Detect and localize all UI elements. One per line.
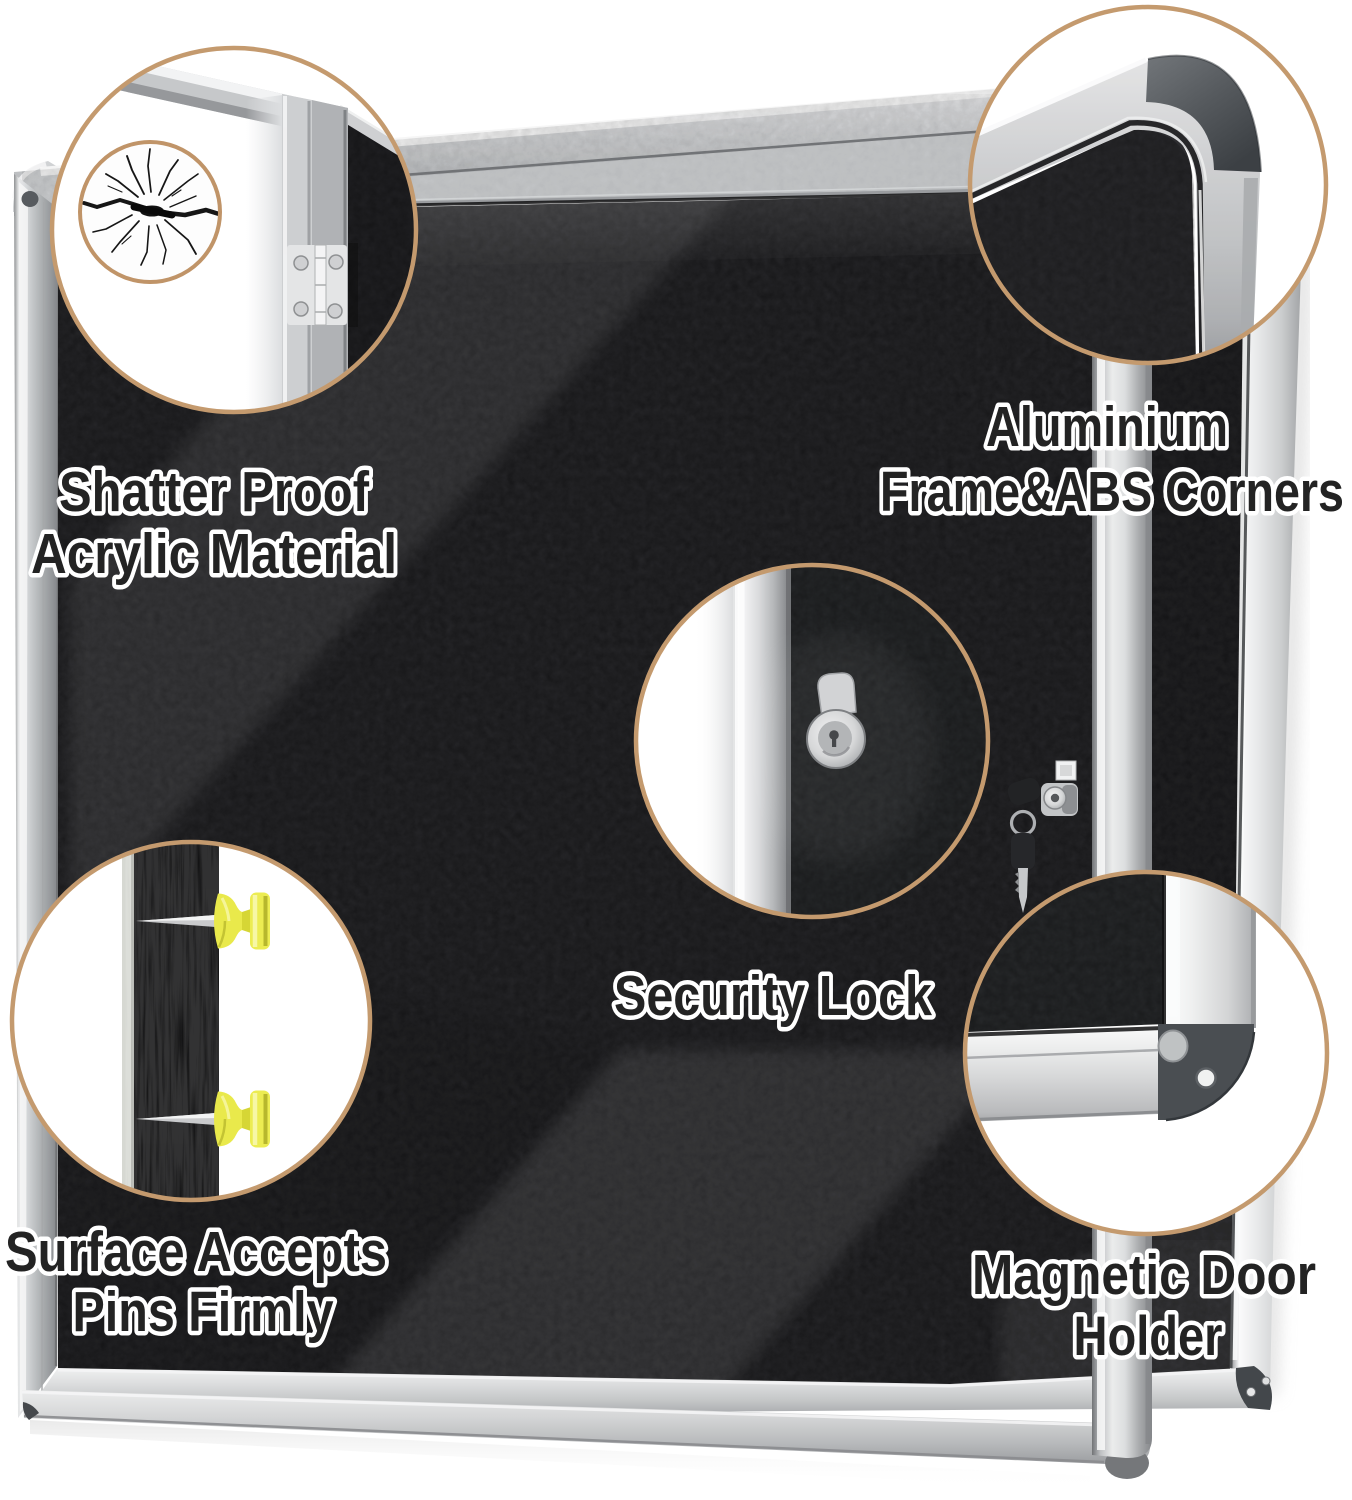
svg-text:Holder: Holder xyxy=(1074,1304,1223,1367)
svg-text:Pins Firmly: Pins Firmly xyxy=(73,1280,334,1344)
svg-text:Acrylic Material: Acrylic Material xyxy=(31,522,397,586)
svg-text:Magnetic Door: Magnetic Door xyxy=(972,1243,1316,1307)
svg-text:Security Lock: Security Lock xyxy=(614,964,932,1028)
svg-text:Surface Accepts: Surface Accepts xyxy=(5,1220,387,1284)
svg-text:Frame&ABS Corners: Frame&ABS Corners xyxy=(880,460,1344,524)
svg-text:Shatter Proof: Shatter Proof xyxy=(59,460,370,524)
svg-text:Aluminium: Aluminium xyxy=(986,395,1228,459)
